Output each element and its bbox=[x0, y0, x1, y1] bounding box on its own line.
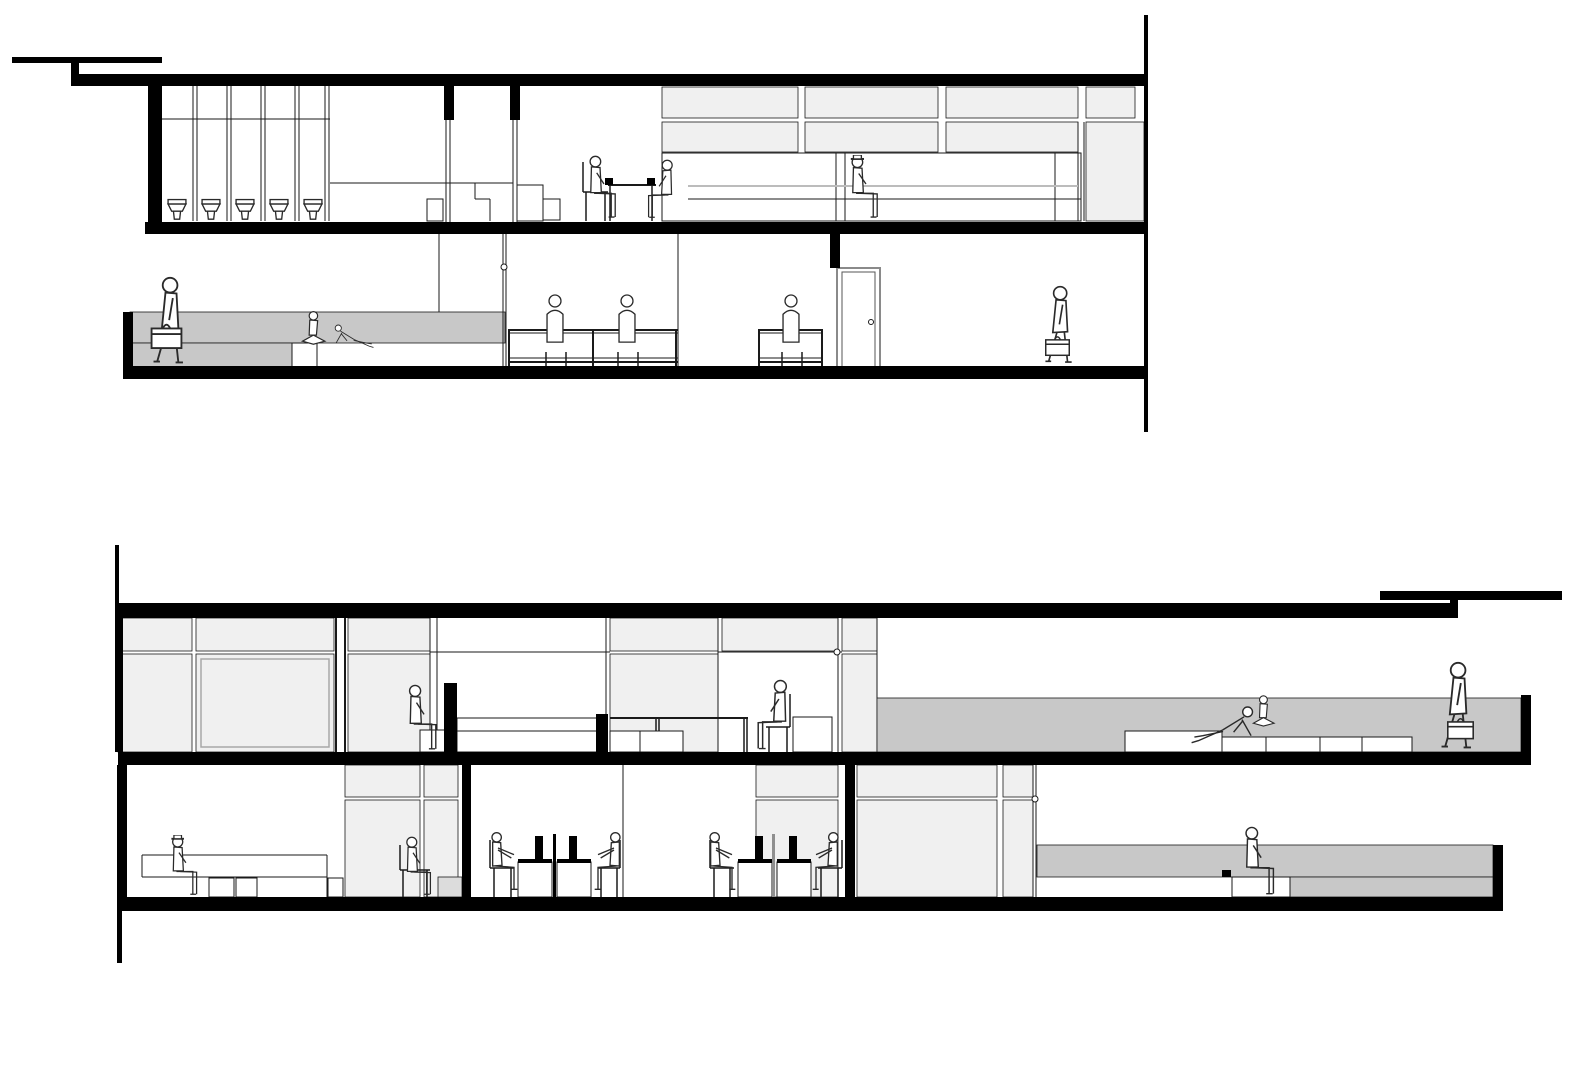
section-cut-line-left bbox=[115, 545, 119, 618]
stool bbox=[328, 878, 343, 897]
ramp-band-low bbox=[1290, 877, 1493, 897]
mid-floor-slab bbox=[145, 222, 1146, 234]
ground-slab bbox=[123, 366, 1146, 379]
glazing-panel bbox=[1003, 800, 1033, 897]
terrace-end-wall bbox=[1521, 695, 1531, 752]
terrace-bench bbox=[1222, 737, 1266, 752]
glazing-panel bbox=[345, 765, 420, 797]
glazing-panel bbox=[756, 765, 838, 797]
toilet-fixture bbox=[168, 200, 186, 220]
person-at-computer bbox=[492, 833, 517, 890]
roof-cantilever-bar bbox=[1380, 591, 1562, 600]
shelf-panel bbox=[946, 87, 1078, 118]
roof-slab bbox=[118, 603, 1457, 618]
counter-long bbox=[457, 718, 607, 752]
toilet-fixture bbox=[270, 200, 288, 220]
desk-divider bbox=[553, 834, 556, 897]
low-cabinet bbox=[543, 199, 560, 220]
person-sitting-at-desk bbox=[758, 680, 786, 748]
section-cut-line-right bbox=[1144, 15, 1148, 432]
workstation-desk bbox=[518, 862, 552, 897]
core-wall bbox=[845, 765, 855, 897]
wall-left-upper bbox=[148, 86, 162, 222]
briefcase bbox=[1448, 719, 1473, 739]
shelf-panel bbox=[946, 122, 1078, 152]
glazing-panel bbox=[118, 618, 192, 651]
ramp-end-wall bbox=[1493, 845, 1503, 911]
shelf-panel bbox=[662, 122, 798, 152]
column bbox=[510, 86, 520, 120]
person-seated-back bbox=[619, 295, 635, 342]
glazing-panel bbox=[196, 654, 334, 752]
roof-cantilever-bar bbox=[12, 57, 162, 63]
monitor bbox=[755, 836, 763, 862]
roof-slab bbox=[71, 74, 1148, 86]
low-cabinet bbox=[640, 731, 683, 752]
platform-step bbox=[438, 877, 462, 897]
ground-slab bbox=[117, 897, 1503, 911]
desk-table bbox=[793, 717, 832, 752]
monitor bbox=[789, 836, 797, 862]
glazing-fitting bbox=[834, 649, 840, 655]
person-sitting-on-bench bbox=[171, 835, 196, 894]
low-cabinet bbox=[427, 199, 443, 221]
bench-block bbox=[1232, 877, 1290, 897]
wall-left-lower bbox=[117, 765, 127, 897]
stool bbox=[236, 878, 257, 897]
column bbox=[596, 714, 608, 752]
person-at-computer bbox=[595, 833, 620, 890]
toilet-fixture bbox=[304, 200, 322, 220]
section-cut-line-left bbox=[117, 911, 122, 963]
glazing-panel bbox=[842, 654, 877, 752]
terrace-bench bbox=[1266, 737, 1320, 752]
mid-floor-slab bbox=[118, 752, 1531, 765]
tall-wall-panel bbox=[1086, 122, 1144, 221]
drawing-canvas bbox=[0, 0, 1575, 1080]
monitor bbox=[535, 836, 543, 862]
monitor bbox=[569, 836, 577, 862]
low-cabinet bbox=[610, 731, 640, 752]
low-cabinet bbox=[517, 185, 543, 221]
column bbox=[444, 86, 454, 120]
stool bbox=[209, 878, 234, 897]
glazing-panel bbox=[857, 800, 997, 897]
glazing-panel bbox=[424, 765, 458, 797]
glazing-panel bbox=[118, 654, 192, 752]
glazing-panel bbox=[610, 618, 718, 651]
core-wall bbox=[462, 765, 471, 897]
toilet-fixture bbox=[202, 200, 220, 220]
bench-step bbox=[292, 343, 317, 368]
column bbox=[444, 683, 457, 752]
desk-divider bbox=[772, 834, 775, 897]
wall-left-upper bbox=[115, 618, 123, 752]
person-seated-back bbox=[783, 295, 799, 342]
door-knob bbox=[869, 320, 874, 325]
shelf-panel bbox=[662, 87, 798, 118]
terrace-bench bbox=[1320, 737, 1362, 752]
glazing-panel bbox=[722, 618, 838, 651]
toilet-fixture bbox=[236, 200, 254, 220]
briefcase bbox=[1046, 337, 1070, 355]
glazing-panel bbox=[348, 618, 430, 651]
workstation-desk bbox=[777, 862, 811, 897]
briefcase bbox=[152, 325, 182, 348]
architectural-section-drawing bbox=[0, 0, 1575, 1080]
glazing-panel bbox=[196, 618, 334, 651]
door-header-column bbox=[830, 234, 840, 268]
shelf-panel bbox=[805, 122, 938, 152]
bag-on-table bbox=[647, 178, 655, 185]
workstation-desk bbox=[557, 862, 591, 897]
ramp-band bbox=[1037, 845, 1493, 877]
person-sitting-at-table bbox=[590, 156, 615, 217]
bag-on-table bbox=[605, 178, 613, 185]
shelf-panel bbox=[1086, 87, 1135, 118]
glazing-panel bbox=[842, 618, 877, 651]
workstation-desk bbox=[738, 862, 772, 897]
glazing-panel bbox=[1003, 765, 1033, 797]
bag-on-floor bbox=[1222, 870, 1231, 877]
person-seated-back bbox=[547, 295, 563, 342]
terrace-bench bbox=[1362, 737, 1412, 752]
glazing-panel bbox=[857, 765, 997, 797]
shelf-panel bbox=[805, 87, 938, 118]
glazing-fitting bbox=[1032, 796, 1038, 802]
partition-fitting bbox=[501, 264, 507, 270]
